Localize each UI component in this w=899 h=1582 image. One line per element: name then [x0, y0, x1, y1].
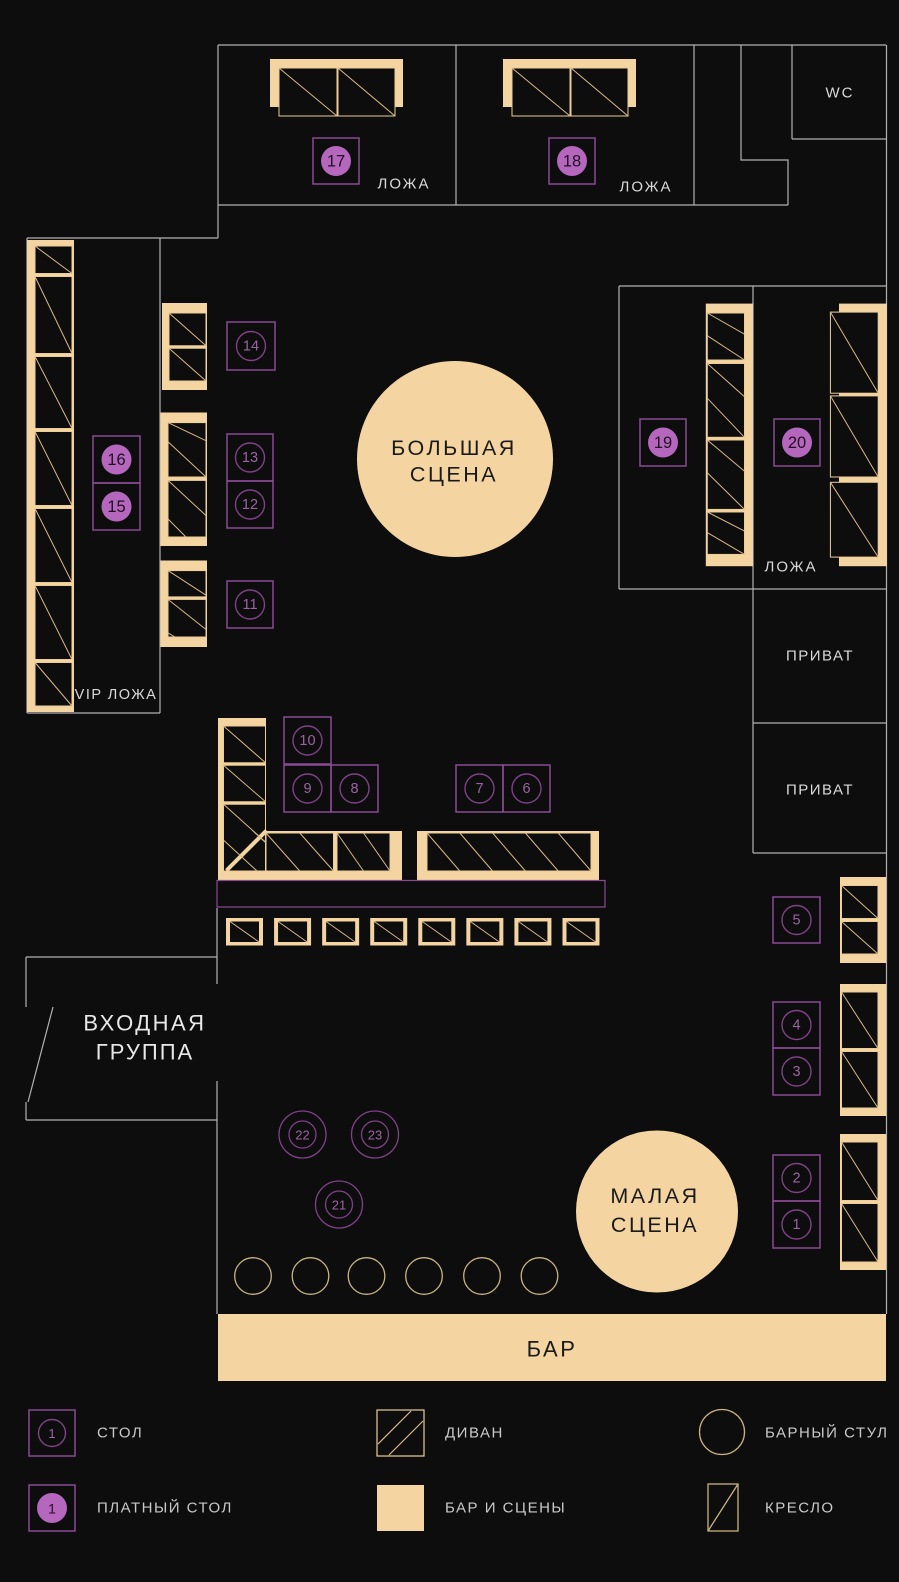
svg-text:ДИВАН: ДИВАН [445, 1425, 504, 1442]
svg-text:21: 21 [332, 1198, 346, 1213]
svg-text:СЦЕНА: СЦЕНА [410, 463, 498, 487]
svg-text:МАЛАЯ: МАЛАЯ [610, 1184, 699, 1208]
svg-text:11: 11 [242, 597, 257, 613]
svg-text:WC: WC [826, 85, 855, 102]
svg-text:10: 10 [299, 733, 315, 749]
svg-text:БАР И СЦЕНЫ: БАР И СЦЕНЫ [445, 1500, 566, 1517]
svg-text:18: 18 [563, 153, 581, 171]
svg-text:2: 2 [792, 1171, 800, 1187]
svg-text:ГРУППА: ГРУППА [96, 1040, 194, 1065]
svg-text:БОЛЬШАЯ: БОЛЬШАЯ [391, 436, 517, 460]
svg-text:22: 22 [295, 1128, 309, 1143]
svg-text:9: 9 [303, 781, 311, 797]
svg-text:СЦЕНА: СЦЕНА [611, 1213, 699, 1237]
svg-text:1: 1 [792, 1217, 800, 1233]
svg-text:15: 15 [107, 498, 125, 516]
svg-text:1: 1 [48, 1501, 56, 1517]
svg-text:8: 8 [350, 781, 358, 797]
svg-text:23: 23 [368, 1128, 382, 1143]
svg-text:ЛОЖА: ЛОЖА [619, 179, 672, 196]
svg-text:КРЕСЛО: КРЕСЛО [765, 1500, 835, 1517]
svg-text:ПРИВАТ: ПРИВАТ [786, 648, 854, 665]
svg-text:ПЛАТНЫЙ СТОЛ: ПЛАТНЫЙ СТОЛ [97, 1499, 233, 1517]
svg-text:6: 6 [522, 781, 530, 797]
svg-text:СТОЛ: СТОЛ [97, 1425, 143, 1442]
svg-text:ЛОЖА: ЛОЖА [764, 559, 817, 576]
svg-text:ВХОДНАЯ: ВХОДНАЯ [83, 1011, 206, 1036]
svg-text:13: 13 [242, 450, 258, 466]
svg-text:16: 16 [107, 451, 125, 469]
svg-text:БАРНЫЙ СТУЛ: БАРНЫЙ СТУЛ [765, 1424, 888, 1442]
svg-text:5: 5 [792, 913, 800, 929]
svg-text:7: 7 [475, 781, 483, 797]
svg-text:ЛОЖА: ЛОЖА [377, 176, 430, 193]
svg-text:3: 3 [792, 1064, 800, 1080]
svg-text:19: 19 [654, 434, 672, 452]
svg-text:17: 17 [327, 153, 345, 171]
svg-text:20: 20 [788, 434, 806, 452]
svg-text:12: 12 [242, 497, 258, 513]
svg-text:VIP ЛОЖА: VIP ЛОЖА [75, 687, 158, 703]
svg-text:1: 1 [48, 1426, 55, 1441]
svg-text:ПРИВАТ: ПРИВАТ [786, 782, 854, 799]
svg-text:14: 14 [243, 339, 259, 355]
svg-text:БАР: БАР [527, 1337, 578, 1362]
svg-text:4: 4 [792, 1018, 800, 1034]
